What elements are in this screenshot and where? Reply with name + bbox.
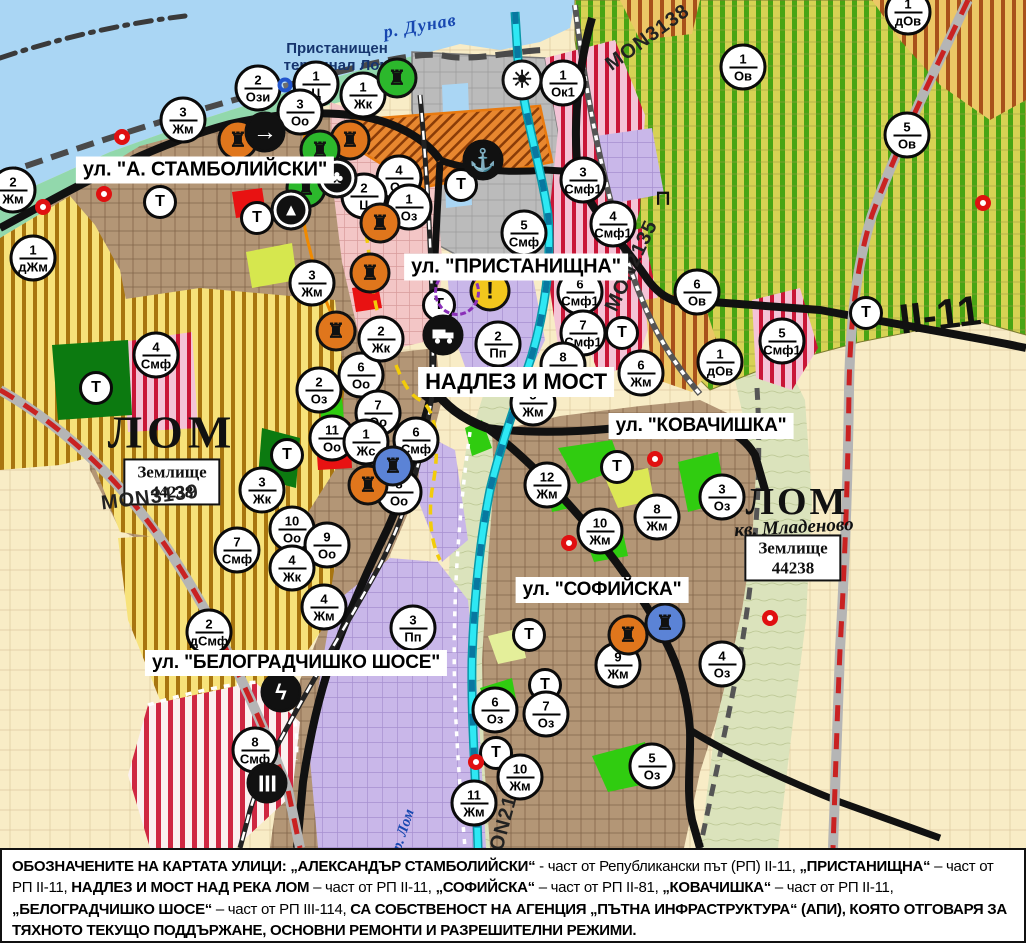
legend-segment: „КОВАЧИШКА“ <box>662 879 771 896</box>
park-dark-green-1 <box>52 340 132 420</box>
legend-segment: „БЕЛОГРАДЧИШКО ШОСЕ“ <box>12 901 212 918</box>
map-canvas[interactable] <box>0 0 1026 848</box>
legend-segment: „ПРИСТАНИЩНА“ <box>799 858 930 875</box>
zoning-map-screenshot: ул. "А. СТАМБОЛИЙСКИ"ул. "ПРИСТАНИЩНА"НА… <box>0 0 1026 943</box>
legend-note-text: ОБОЗНАЧЕНИТЕ НА КАРТАТА УЛИЦИ: „АЛЕКСАНД… <box>12 856 1014 941</box>
legend-note: ОБОЗНАЧЕНИТЕ НА КАРТАТА УЛИЦИ: „АЛЕКСАНД… <box>0 848 1026 943</box>
legend-segment: – част от РП II-81, <box>535 879 662 896</box>
legend-segment: – част от РП III-114, <box>212 901 350 918</box>
park-dark-green-2 <box>258 428 300 488</box>
smf-zone-west <box>122 332 198 432</box>
yellow-zone-mid <box>82 288 345 545</box>
legend-segment: – част от РП II-11, <box>771 879 893 896</box>
red-zone-2 <box>232 188 266 218</box>
legend-segment: - част от Републикански път (РП) II-11, <box>535 858 799 875</box>
legend-segment: „СОФИЙСКА“ <box>436 879 535 896</box>
red-zone-1 <box>315 422 352 470</box>
pp-zone-south <box>310 558 486 848</box>
legend-segment: – част от РП II-11, <box>309 879 435 896</box>
legend-segment: НАДЛЕЗ И МОСТ НАД РЕКА ЛОМ <box>71 879 309 896</box>
legend-segment: ОБОЗНАЧЕНИТЕ НА КАРТАТА УЛИЦИ: „АЛЕКСАНД… <box>12 858 535 875</box>
